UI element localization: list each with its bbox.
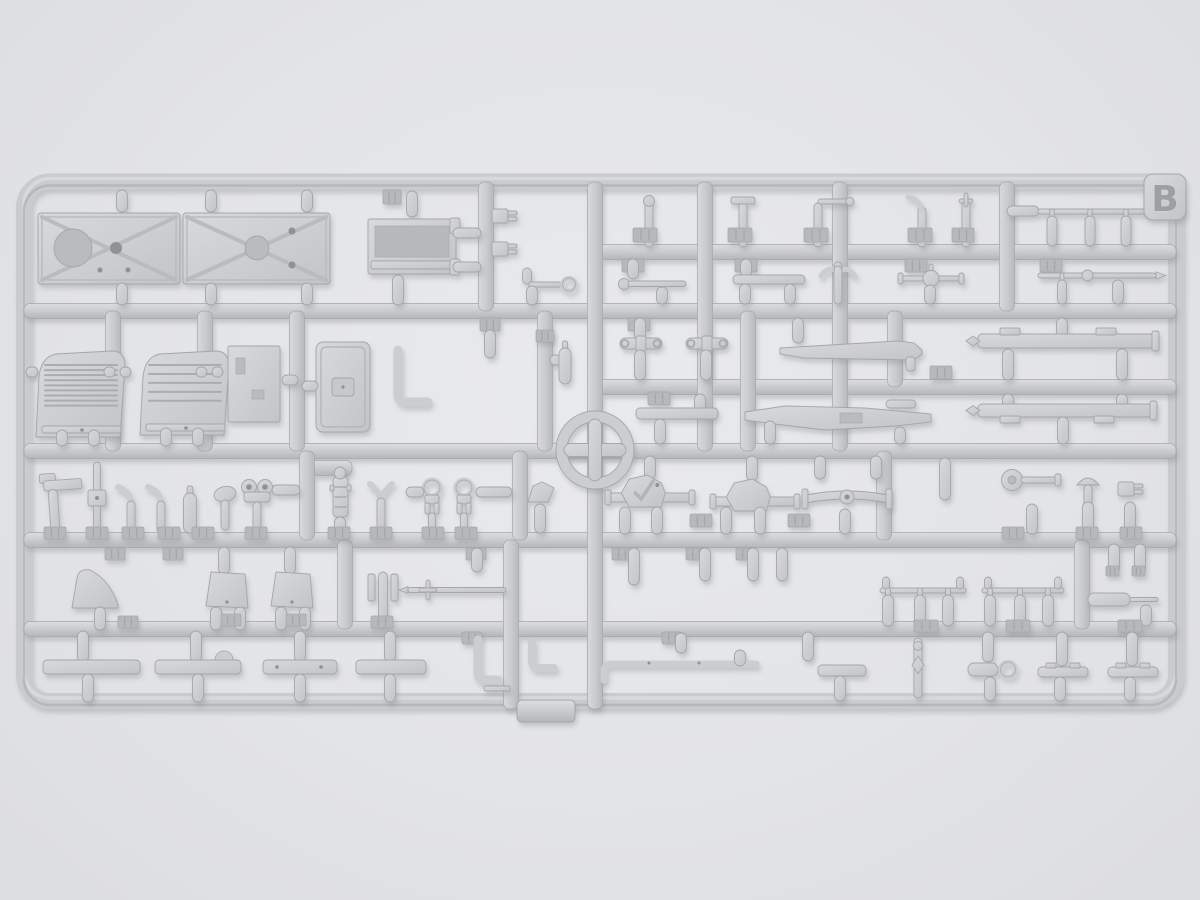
pin-part bbox=[219, 547, 230, 574]
pin-part bbox=[1127, 632, 1138, 666]
trap-part bbox=[271, 572, 313, 608]
center-cross-marker bbox=[556, 411, 634, 489]
tag-part bbox=[536, 330, 554, 342]
pin-part bbox=[1117, 349, 1128, 380]
ballrod-part bbox=[619, 279, 687, 290]
sprue-letter-tab: B bbox=[1144, 174, 1186, 220]
tag-part bbox=[908, 228, 932, 242]
tag-part bbox=[1040, 259, 1062, 272]
pin-part bbox=[276, 607, 287, 630]
tag-part bbox=[1106, 566, 1119, 576]
pin-part bbox=[635, 350, 646, 380]
leafspring-part bbox=[620, 336, 662, 351]
pin-part bbox=[95, 607, 106, 630]
pin-part bbox=[485, 330, 496, 358]
clip-part bbox=[1118, 482, 1143, 496]
bar-part bbox=[263, 660, 337, 674]
tag-part bbox=[804, 228, 828, 242]
pin-part bbox=[295, 674, 306, 702]
tag-part bbox=[1132, 566, 1145, 576]
hpin-part bbox=[406, 487, 424, 497]
tag-part bbox=[1120, 527, 1142, 539]
nub-part bbox=[957, 577, 964, 589]
pin-part bbox=[840, 509, 851, 534]
pin-part bbox=[206, 283, 217, 305]
runner-vertical bbox=[338, 540, 353, 629]
pin-part bbox=[407, 191, 418, 217]
spear-part bbox=[399, 580, 506, 600]
runner-vertical bbox=[741, 311, 756, 451]
pin-part bbox=[755, 507, 766, 534]
pin-part bbox=[747, 456, 758, 481]
axlerod-part bbox=[880, 588, 966, 593]
hpin-part bbox=[212, 367, 223, 377]
sprue-letter: B bbox=[1151, 179, 1178, 220]
pin-part bbox=[835, 676, 846, 701]
tag-part bbox=[122, 527, 144, 539]
tag-part bbox=[118, 616, 138, 628]
pin-part bbox=[89, 430, 100, 446]
tag-part bbox=[371, 616, 393, 628]
runner-vertical bbox=[300, 451, 315, 540]
pin-part bbox=[657, 287, 668, 304]
bottle-part bbox=[559, 341, 571, 384]
pipe-part bbox=[604, 662, 756, 681]
pin-part bbox=[983, 632, 994, 662]
tag-part bbox=[1118, 620, 1142, 632]
tag-part bbox=[163, 548, 183, 560]
hpin-part bbox=[104, 367, 115, 377]
fin-part bbox=[528, 482, 554, 502]
tag-part bbox=[1076, 527, 1098, 539]
hatchpanel-part bbox=[316, 342, 370, 432]
bottle-part bbox=[1121, 209, 1131, 246]
pin-part bbox=[83, 674, 94, 702]
pin-part bbox=[191, 631, 202, 662]
tag-part bbox=[648, 392, 670, 405]
pin-part bbox=[117, 190, 128, 212]
hpin-part bbox=[120, 367, 131, 377]
pin-part bbox=[765, 421, 776, 444]
pin-part bbox=[193, 428, 204, 446]
pin-part bbox=[385, 631, 396, 662]
pin-part bbox=[57, 430, 68, 446]
roller-part bbox=[968, 662, 1016, 677]
pin-part bbox=[1057, 632, 1068, 666]
pin-part bbox=[652, 507, 663, 534]
tag-part bbox=[905, 259, 927, 272]
pin-part bbox=[803, 632, 814, 661]
fender-part bbox=[72, 570, 118, 608]
tag-part bbox=[788, 514, 810, 527]
pin-part bbox=[655, 419, 666, 444]
pin-part bbox=[535, 504, 546, 533]
tag-part bbox=[422, 527, 444, 539]
anchor-part bbox=[821, 262, 855, 304]
pin-part bbox=[629, 548, 640, 585]
hpin-part bbox=[453, 262, 481, 272]
pin-part bbox=[925, 285, 936, 304]
bottle-part bbox=[883, 588, 894, 626]
pin-part bbox=[815, 456, 826, 479]
pin-part bbox=[700, 548, 711, 581]
tag-part bbox=[690, 514, 712, 527]
tag-part bbox=[952, 228, 974, 242]
pin-part bbox=[620, 507, 631, 534]
pin-part bbox=[302, 190, 313, 212]
pin-part bbox=[1055, 677, 1066, 701]
pin-part bbox=[1125, 677, 1136, 701]
sprue-photo: B bbox=[0, 0, 1200, 900]
tag-part bbox=[158, 527, 180, 539]
runner-vertical bbox=[1075, 540, 1090, 629]
clip-part bbox=[492, 209, 517, 223]
hood-part bbox=[36, 351, 125, 437]
pin-part bbox=[735, 650, 746, 666]
pin-part bbox=[748, 548, 759, 581]
tag-part bbox=[221, 614, 241, 626]
peri-part bbox=[39, 471, 85, 534]
clamp2-part bbox=[242, 480, 273, 533]
elbow-part bbox=[398, 350, 428, 402]
tag-part bbox=[1006, 620, 1030, 632]
pin-part bbox=[285, 547, 296, 574]
hpin-part bbox=[302, 381, 318, 391]
pin-part bbox=[117, 283, 128, 305]
trap-part bbox=[206, 572, 248, 608]
hpin-part bbox=[272, 485, 300, 495]
bottle-part bbox=[943, 588, 954, 626]
hood-part bbox=[140, 351, 229, 435]
pin-part bbox=[393, 275, 404, 305]
tag-part bbox=[86, 527, 108, 539]
lever-part bbox=[912, 638, 924, 698]
periscope-shape bbox=[39, 471, 85, 534]
axlerod-part bbox=[982, 588, 1064, 593]
tag-part bbox=[370, 527, 392, 539]
hpin-part bbox=[453, 228, 481, 238]
hook-part bbox=[118, 487, 135, 533]
hpin-part bbox=[196, 367, 207, 377]
elbow-part bbox=[532, 642, 554, 668]
pin-part bbox=[527, 286, 538, 305]
tag-part bbox=[633, 228, 657, 242]
pin-part bbox=[701, 350, 712, 380]
leafspring-part bbox=[686, 336, 728, 351]
tag-part bbox=[455, 527, 477, 539]
nub-part bbox=[1055, 577, 1062, 589]
tag-part bbox=[914, 620, 938, 632]
pin-part bbox=[871, 456, 882, 479]
tag-part bbox=[105, 548, 125, 560]
bar-part bbox=[886, 400, 916, 408]
hpin-part bbox=[282, 375, 298, 385]
nub-part bbox=[985, 577, 992, 589]
runner-horizontal bbox=[595, 245, 1176, 260]
pin-part bbox=[676, 633, 687, 653]
hpin-part bbox=[476, 487, 512, 497]
nub-part bbox=[883, 577, 890, 589]
bottle-part bbox=[1047, 209, 1057, 246]
pin-part bbox=[161, 428, 172, 446]
yfork-part bbox=[370, 484, 392, 534]
tag-part bbox=[245, 527, 267, 539]
pin-part bbox=[741, 259, 752, 277]
pin-part bbox=[193, 674, 204, 702]
bottom-foot-tab bbox=[517, 700, 575, 722]
runner-vertical bbox=[479, 182, 494, 311]
hook-part bbox=[148, 487, 165, 533]
sprue-svg: B bbox=[0, 0, 1200, 900]
pin-part bbox=[206, 190, 217, 212]
panelx-part bbox=[38, 213, 180, 284]
runner-vertical bbox=[513, 451, 528, 540]
roller-part bbox=[1088, 593, 1158, 606]
pin-part bbox=[1003, 349, 1014, 380]
bar-part bbox=[733, 275, 805, 284]
hpin-part bbox=[1007, 206, 1039, 216]
bar-part bbox=[43, 660, 140, 674]
pin-part bbox=[211, 607, 222, 630]
box-part bbox=[368, 218, 460, 275]
pin-part bbox=[740, 284, 751, 304]
pin-part bbox=[472, 548, 483, 572]
plate-part bbox=[228, 346, 280, 422]
pin-part bbox=[985, 677, 996, 701]
pin-part bbox=[628, 259, 639, 279]
tag-part bbox=[286, 614, 306, 626]
tag-part bbox=[930, 366, 952, 379]
pin-part bbox=[793, 318, 804, 343]
pin-part bbox=[1058, 417, 1069, 444]
bottle-part bbox=[1043, 588, 1054, 626]
bottle-part bbox=[184, 486, 197, 533]
runner-vertical bbox=[1000, 182, 1015, 311]
pin-part bbox=[1027, 504, 1038, 534]
runner-vertical bbox=[504, 540, 519, 709]
pin-part bbox=[940, 458, 951, 500]
bottle-part bbox=[985, 588, 996, 626]
pin-part bbox=[385, 674, 396, 702]
diffaxle-part bbox=[710, 479, 800, 511]
runner-horizontal bbox=[595, 380, 1176, 395]
stemsq-part bbox=[88, 462, 106, 533]
pin-part bbox=[721, 507, 732, 534]
panelx-part bbox=[183, 213, 330, 284]
bottle-part bbox=[1085, 209, 1095, 246]
hpin-part bbox=[26, 367, 38, 377]
tag-part bbox=[383, 190, 401, 204]
pin-part bbox=[302, 283, 313, 305]
pin-part bbox=[895, 427, 906, 444]
pin-part bbox=[295, 631, 306, 662]
pin-part bbox=[785, 284, 796, 304]
tag-part bbox=[328, 527, 350, 539]
tag-part bbox=[1002, 527, 1024, 539]
tag-part bbox=[480, 318, 500, 331]
pin-part bbox=[335, 467, 346, 479]
clip-part bbox=[492, 242, 517, 256]
bar-part bbox=[818, 665, 866, 676]
tag-part bbox=[44, 527, 66, 539]
bar-part bbox=[356, 660, 426, 674]
pin-part bbox=[78, 631, 89, 662]
pin-part bbox=[777, 548, 788, 581]
ovalhead-part bbox=[213, 484, 238, 530]
bar-part bbox=[636, 408, 718, 419]
tag-part bbox=[192, 527, 214, 539]
pin-part bbox=[1113, 280, 1124, 304]
tag-part bbox=[728, 228, 752, 242]
hubrod-part bbox=[1002, 470, 1062, 491]
